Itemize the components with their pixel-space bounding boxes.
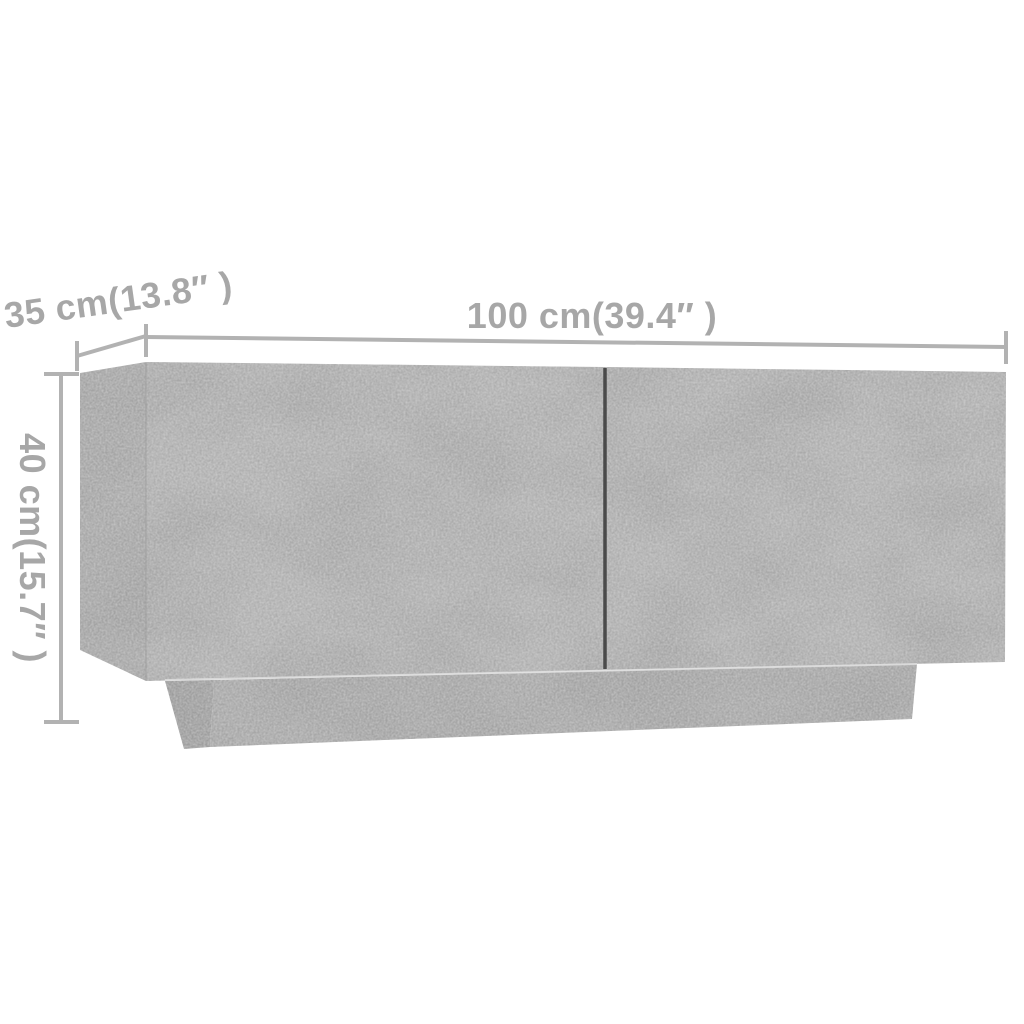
- height-dimension-label: 40 cm(15.7″ ): [12, 433, 53, 663]
- depth-dimension-line: [77, 336, 146, 356]
- dimension-diagram: 100 cm(39.4″ ) 35 cm(13.8″ ) 40 cm(15.7″…: [0, 0, 1024, 1024]
- cabinet-left-door: [146, 362, 605, 681]
- width-dimension-line: [146, 337, 1006, 347]
- plinth-left-side: [165, 680, 214, 749]
- tv-cabinet: [80, 362, 1006, 749]
- depth-dimension-label: 35 cm(13.8″ ): [2, 263, 235, 336]
- width-dimension-label: 100 cm(39.4″ ): [467, 295, 717, 336]
- cabinet-right-door: [605, 367, 1006, 670]
- height-dimension: 40 cm(15.7″ ): [12, 374, 79, 722]
- product-dimension-image: 100 cm(39.4″ ) 35 cm(13.8″ ) 40 cm(15.7″…: [0, 0, 1024, 1024]
- cabinet-left-side-panel: [80, 362, 146, 681]
- width-dimension: 100 cm(39.4″ ): [146, 295, 1006, 364]
- depth-dimension: 35 cm(13.8″ ): [2, 263, 235, 371]
